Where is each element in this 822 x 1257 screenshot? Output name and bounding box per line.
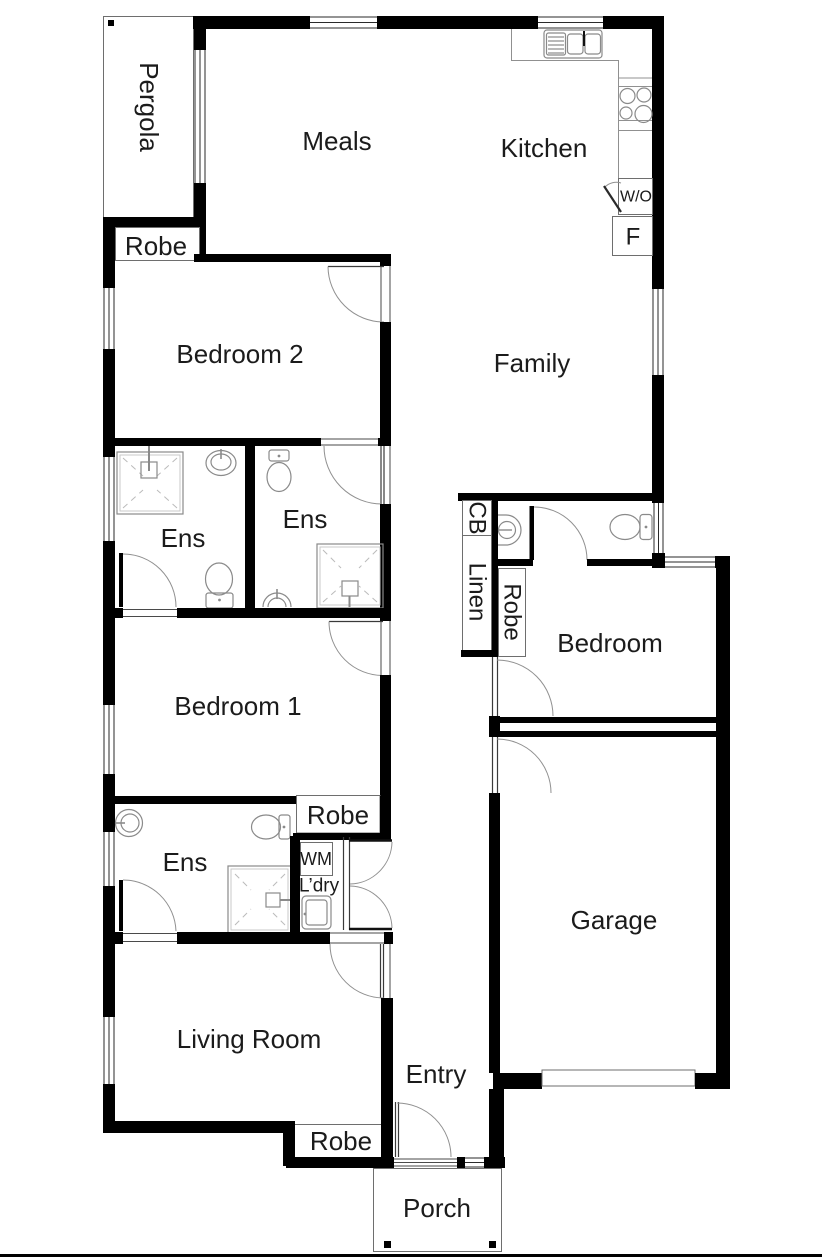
svg-text:Robe: Robe: [307, 800, 369, 830]
svg-text:Ens: Ens: [163, 847, 208, 877]
svg-text:WM: WM: [300, 849, 332, 869]
svg-text:Ens: Ens: [161, 523, 206, 553]
svg-text:Robe: Robe: [310, 1126, 372, 1156]
svg-text:Garage: Garage: [571, 905, 658, 935]
svg-text:Robe: Robe: [499, 583, 526, 640]
svg-text:F: F: [626, 224, 641, 251]
svg-text:Ens: Ens: [283, 504, 328, 534]
svg-text:L’dry: L’dry: [299, 876, 340, 897]
svg-text:Robe: Robe: [125, 231, 187, 261]
svg-text:Porch: Porch: [403, 1193, 471, 1223]
svg-text:Entry: Entry: [406, 1059, 467, 1089]
svg-text:Living Room: Living Room: [177, 1024, 322, 1054]
svg-text:Meals: Meals: [302, 126, 371, 156]
svg-text:Pergola: Pergola: [134, 62, 164, 152]
svg-text:Family: Family: [494, 348, 571, 378]
svg-text:Linen: Linen: [464, 563, 491, 622]
svg-text:CB: CB: [464, 501, 491, 534]
svg-text:Kitchen: Kitchen: [501, 133, 588, 163]
svg-text:W/O: W/O: [620, 189, 652, 206]
svg-text:Bedroom 1: Bedroom 1: [174, 691, 301, 721]
svg-text:Bedroom: Bedroom: [557, 628, 663, 658]
svg-text:Bedroom 2: Bedroom 2: [176, 339, 303, 369]
